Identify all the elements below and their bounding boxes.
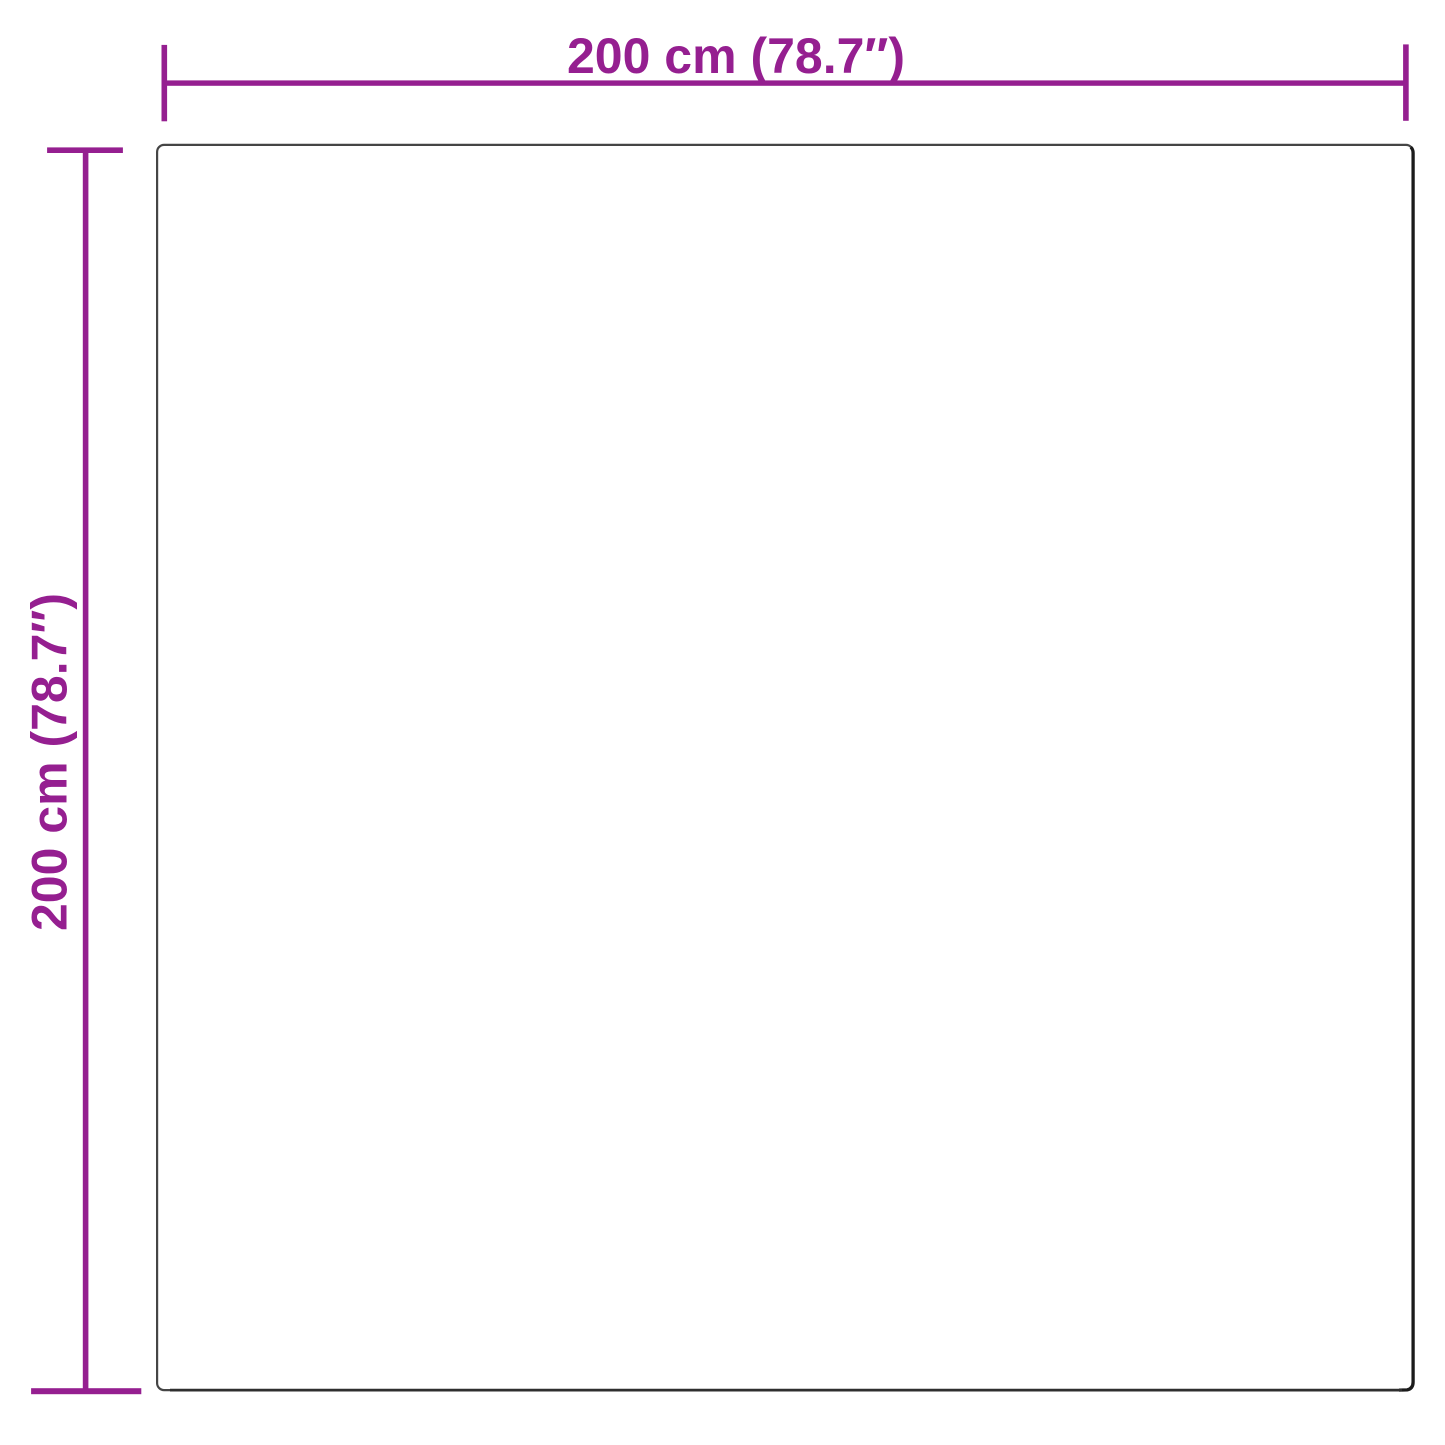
svg-text:200 cm (78.7″): 200 cm (78.7″) — [567, 28, 905, 84]
svg-text:200 cm (78.7″): 200 cm (78.7″) — [21, 593, 77, 931]
